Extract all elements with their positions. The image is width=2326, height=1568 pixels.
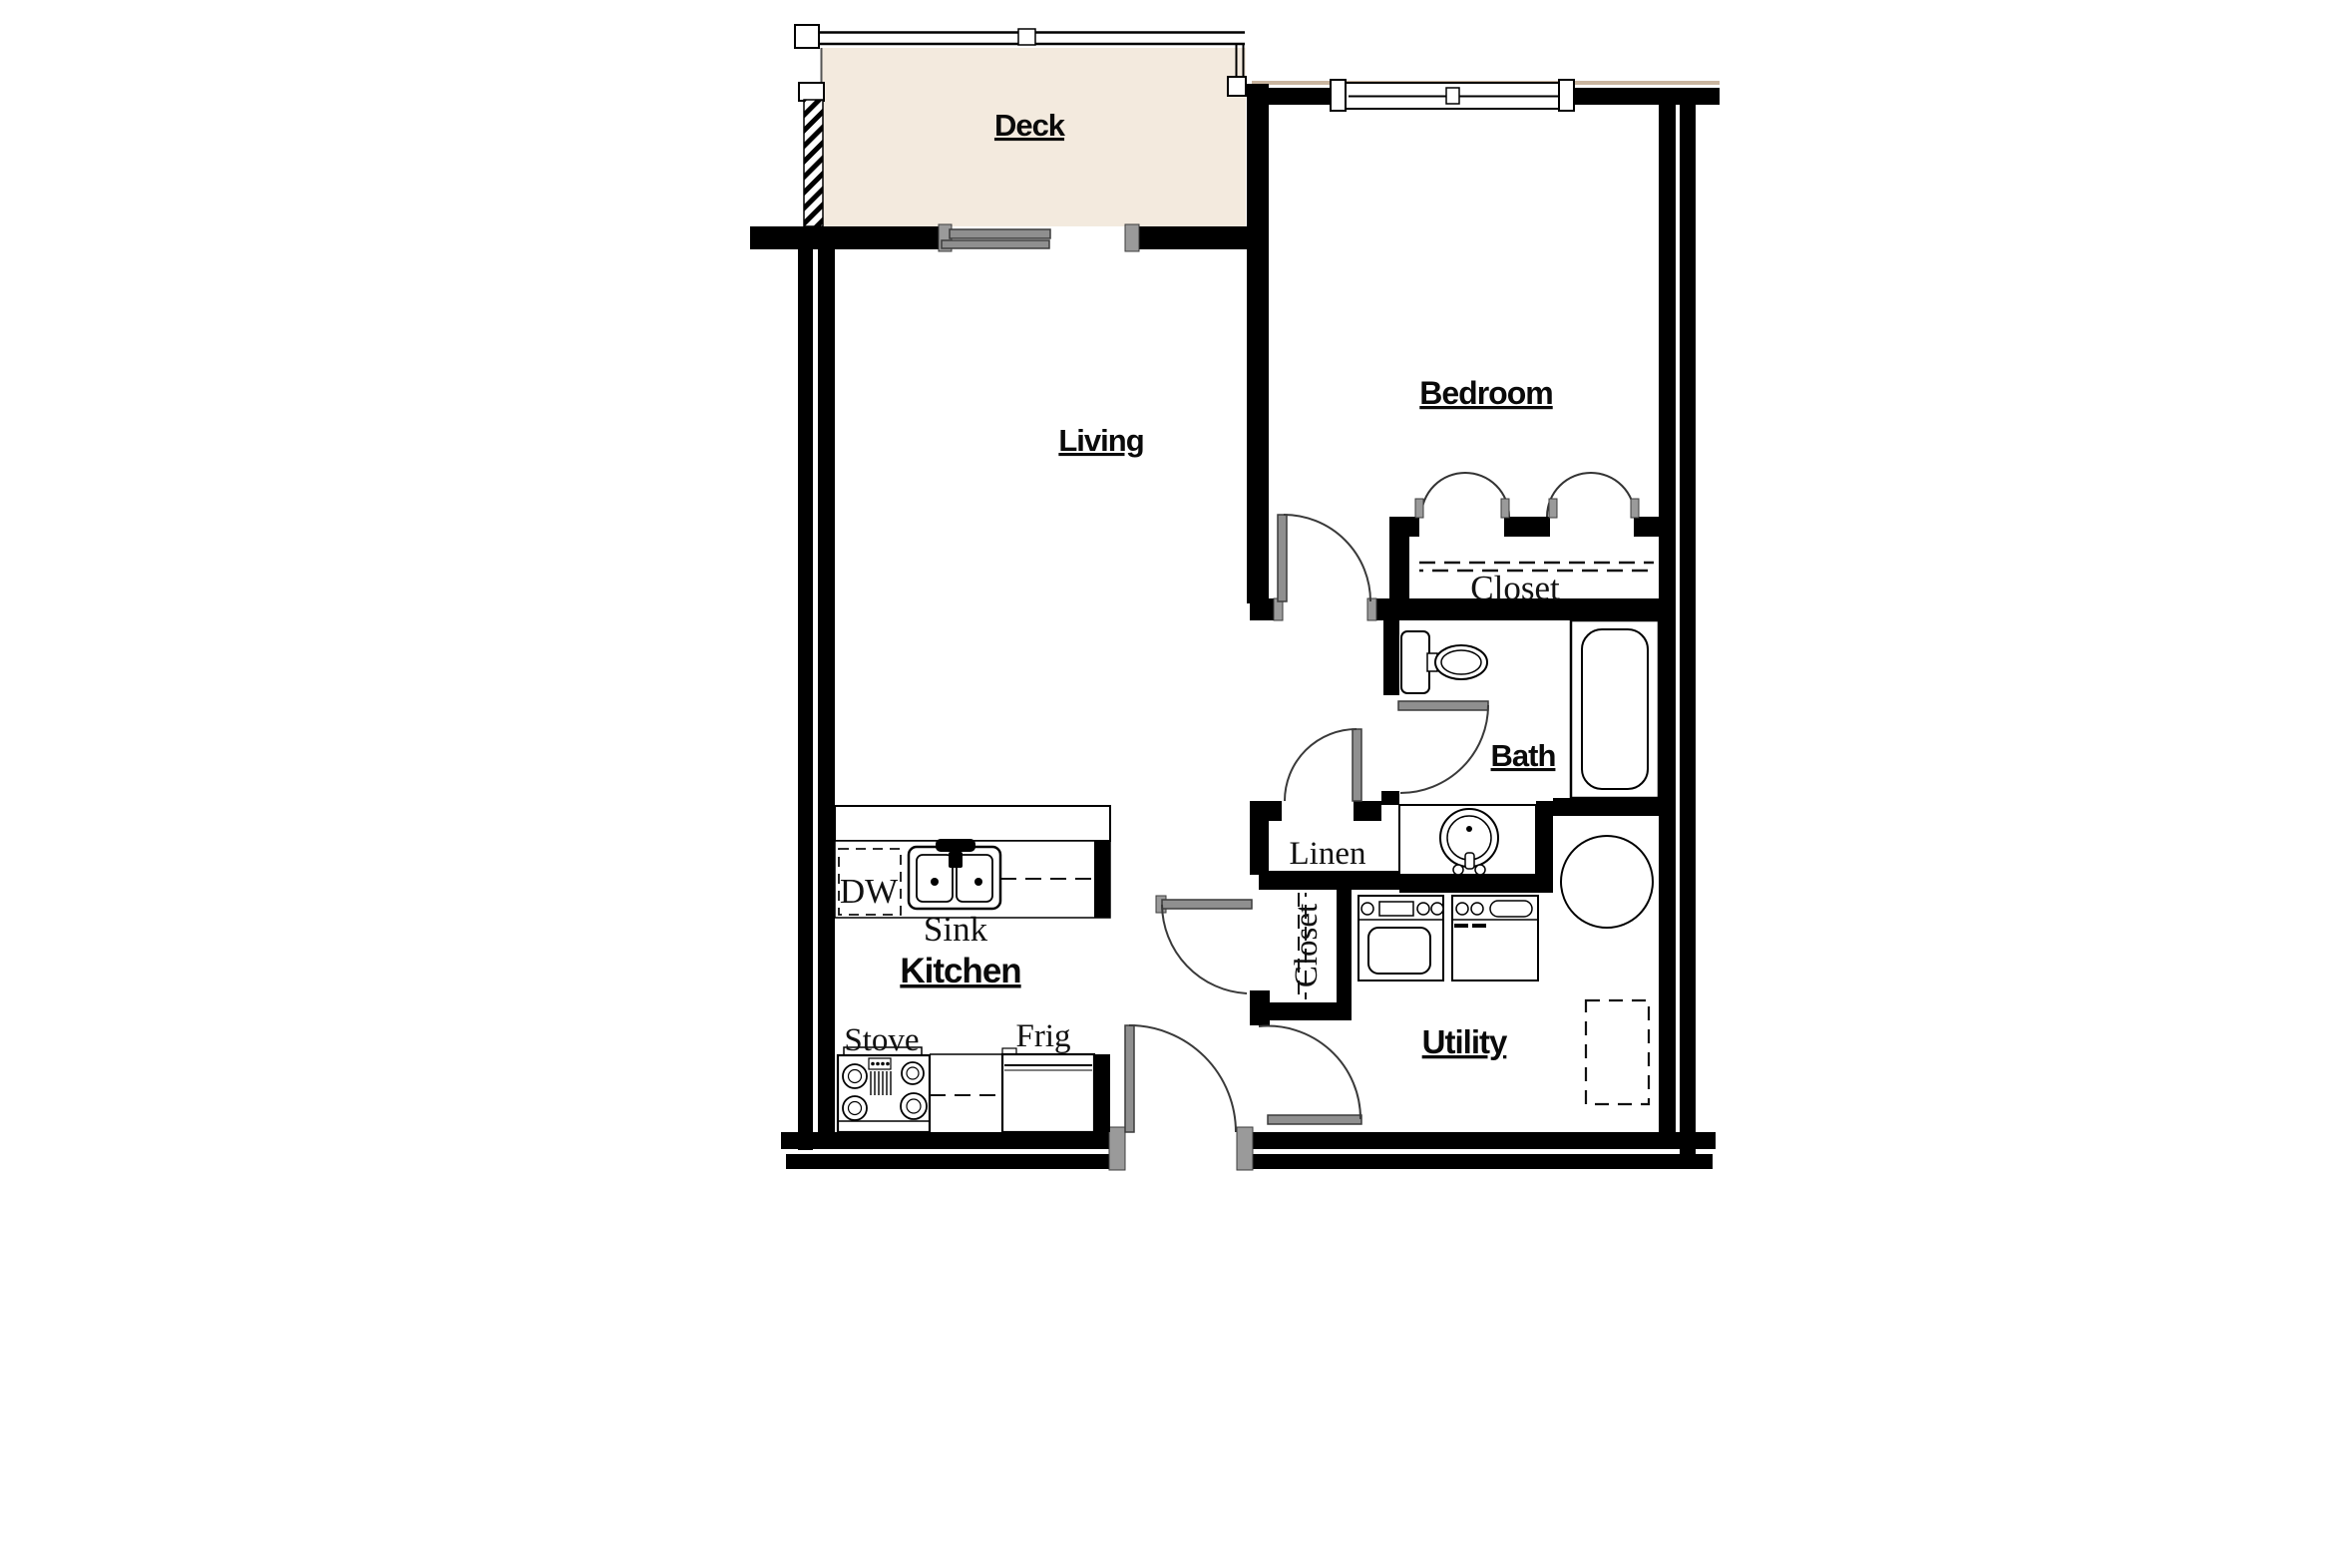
deck-label: Deck [994,108,1066,143]
kitchen-sink [909,839,1000,909]
utility-label: Utility [1422,1023,1508,1060]
railing-post [1228,77,1246,96]
linen-label: Linen [1290,836,1366,872]
refrigerator [1002,1048,1094,1132]
door-leaf [1353,729,1361,801]
dryer-unit [1358,896,1443,980]
bathtub [1571,620,1659,798]
floor-plan-sheet: Deck [0,0,2326,1568]
washer-unit [1452,896,1538,980]
living-label: Living [1058,423,1143,458]
column-cap [799,83,824,101]
fridge-label: Frig [1015,1018,1070,1054]
door-leaf [1398,701,1488,710]
bedroom-closet-label: Closet [1470,569,1560,607]
window-mullion [1446,88,1459,104]
entry-door [1109,1025,1253,1170]
bath-door [1398,701,1488,793]
dishwasher-label: DW [840,872,898,911]
railing-post [1018,29,1035,45]
toilet [1401,631,1487,693]
door-leaf [1278,515,1287,601]
utility-door [1259,1026,1361,1124]
hall-closet-door [1156,896,1252,993]
structural-column [804,100,823,226]
hall-closet-label: Closet [1289,904,1325,987]
stove [838,1047,930,1132]
linen-door [1285,729,1361,801]
bath-vanity-sink [1399,805,1536,875]
railing-post [795,25,819,48]
stove-label: Stove [844,1022,919,1058]
slider-panel [942,240,1049,248]
sliding-patio-door [939,224,1139,251]
door-leaf [1268,1115,1361,1124]
bedroom-label: Bedroom [1419,375,1552,411]
bedroom-window [1331,80,1574,111]
water-heater [1561,836,1653,928]
faucet [936,839,975,852]
bath-label: Bath [1491,738,1556,773]
title-block: COLPITTS DEVELOPMENTS RESIDENTIAL & COMM… [0,1327,2326,1568]
bedroom-door [1274,515,1376,620]
sink-label: Sink [924,910,988,949]
floor-plan-drawing: Deck [0,0,2326,1297]
kitchen-label: Kitchen [900,952,1020,990]
slider-panel [950,229,1050,238]
future-appliance-space [1586,1000,1649,1104]
closet-bifold-doors [1415,473,1639,518]
door-leaf [1125,1025,1134,1132]
deck-area: Deck [795,25,1246,226]
door-leaf [1162,900,1252,909]
